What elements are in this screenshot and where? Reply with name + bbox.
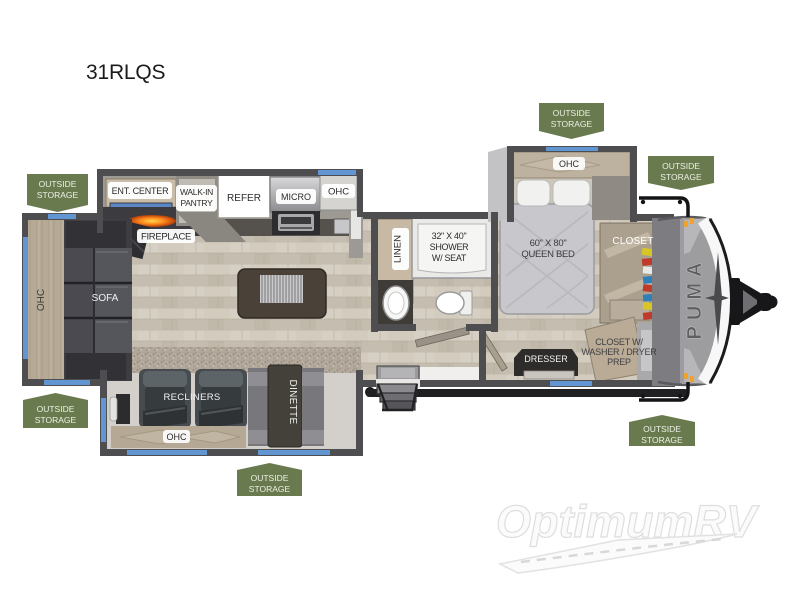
svg-text:QUEEN BED: QUEEN BED [521,249,575,260]
svg-text:OUTSIDE: OUTSIDE [553,108,591,118]
svg-text:31RLQS: 31RLQS [86,61,166,84]
svg-text:FIREPLACE: FIREPLACE [141,232,191,243]
svg-text:OUTSIDE: OUTSIDE [643,424,681,434]
svg-text:OUTSIDE: OUTSIDE [251,473,289,483]
svg-text:OHC: OHC [36,289,47,311]
svg-text:PANTRY: PANTRY [181,198,214,208]
svg-text:STORAGE: STORAGE [660,172,702,182]
svg-text:REFER: REFER [227,193,261,204]
svg-text:OUTSIDE: OUTSIDE [662,161,700,171]
svg-text:OUTSIDE: OUTSIDE [39,179,77,189]
svg-text:MICRO: MICRO [281,192,311,202]
svg-text:OHC: OHC [559,159,580,169]
svg-text:LINEN: LINEN [393,235,404,263]
svg-text:SOFA: SOFA [92,293,119,304]
svg-text:32" X 40": 32" X 40" [432,231,467,241]
svg-text:W/ SEAT: W/ SEAT [432,253,467,263]
svg-text:OHC: OHC [167,432,188,442]
svg-text:60" X 80": 60" X 80" [530,238,567,249]
svg-text:PREP: PREP [607,357,631,367]
svg-text:PUMA: PUMA [684,257,706,340]
svg-text:DINETTE: DINETTE [287,380,298,425]
svg-text:CLOSET: CLOSET [612,236,653,247]
svg-text:STORAGE: STORAGE [37,190,79,200]
svg-text:STORAGE: STORAGE [641,435,683,445]
svg-text:OHC: OHC [328,187,349,198]
svg-text:SHOWER: SHOWER [430,242,470,252]
svg-text:OUTSIDE: OUTSIDE [37,404,75,414]
svg-text:CLOSET W/: CLOSET W/ [595,337,643,347]
svg-text:STORAGE: STORAGE [35,415,77,425]
svg-text:STORAGE: STORAGE [551,119,593,129]
svg-text:DRESSER: DRESSER [524,354,568,364]
svg-text:RECLINERS: RECLINERS [163,392,220,403]
svg-text:WASHER / DRYER: WASHER / DRYER [581,347,657,357]
svg-text:ENT. CENTER: ENT. CENTER [112,186,170,196]
svg-text:STORAGE: STORAGE [249,484,291,494]
svg-text:WALK-IN: WALK-IN [180,187,213,197]
